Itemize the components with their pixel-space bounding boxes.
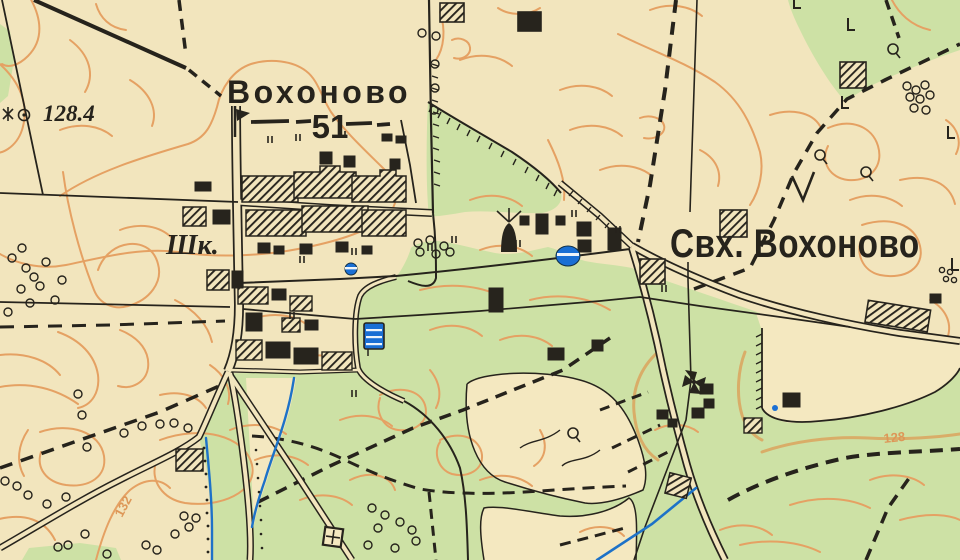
- svg-text:Шк.: Шк.: [165, 230, 219, 261]
- svg-text:128.4: 128.4: [43, 101, 95, 126]
- svg-text:Вохоново: Вохоново: [227, 74, 411, 110]
- svg-text:128: 128: [883, 429, 906, 446]
- svg-text:Свх. Вохоново: Свх. Вохоново: [670, 221, 920, 266]
- svg-text:51: 51: [312, 108, 349, 145]
